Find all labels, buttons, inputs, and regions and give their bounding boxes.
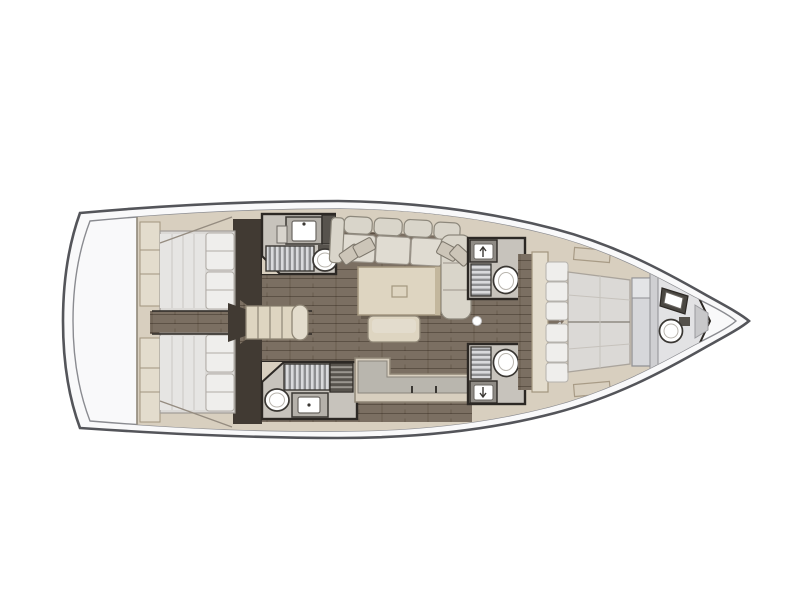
stool-cushion: [372, 319, 416, 333]
shower-grate: [266, 246, 314, 271]
head-aft-starboard: [262, 362, 357, 419]
companionway-steps: [228, 303, 308, 342]
yacht-floor-plan-canvas: [0, 0, 800, 600]
shower-grate: [471, 347, 491, 379]
table-edge: [435, 267, 440, 315]
drain: [307, 403, 310, 406]
cabin-dark-surround: [233, 326, 262, 424]
toilet: [265, 389, 289, 411]
shower-grate: [471, 264, 491, 296]
compression-post: [473, 317, 482, 326]
faucet: [302, 222, 305, 225]
head-aft-port: [262, 214, 337, 274]
aft-cabin-port: [140, 217, 262, 319]
shower-grate: [284, 364, 330, 390]
yacht-floor-plan: [0, 0, 800, 600]
toilet: [660, 320, 683, 343]
locker: [277, 226, 287, 243]
grate-dark: [330, 363, 353, 392]
wardrobe: [140, 338, 160, 422]
dining-table: [358, 267, 440, 315]
bow-bulkhead: [650, 264, 658, 380]
cabin-dark-surround: [233, 219, 262, 319]
aft-cabin-starboard: [140, 326, 262, 427]
wardrobe: [140, 222, 160, 306]
